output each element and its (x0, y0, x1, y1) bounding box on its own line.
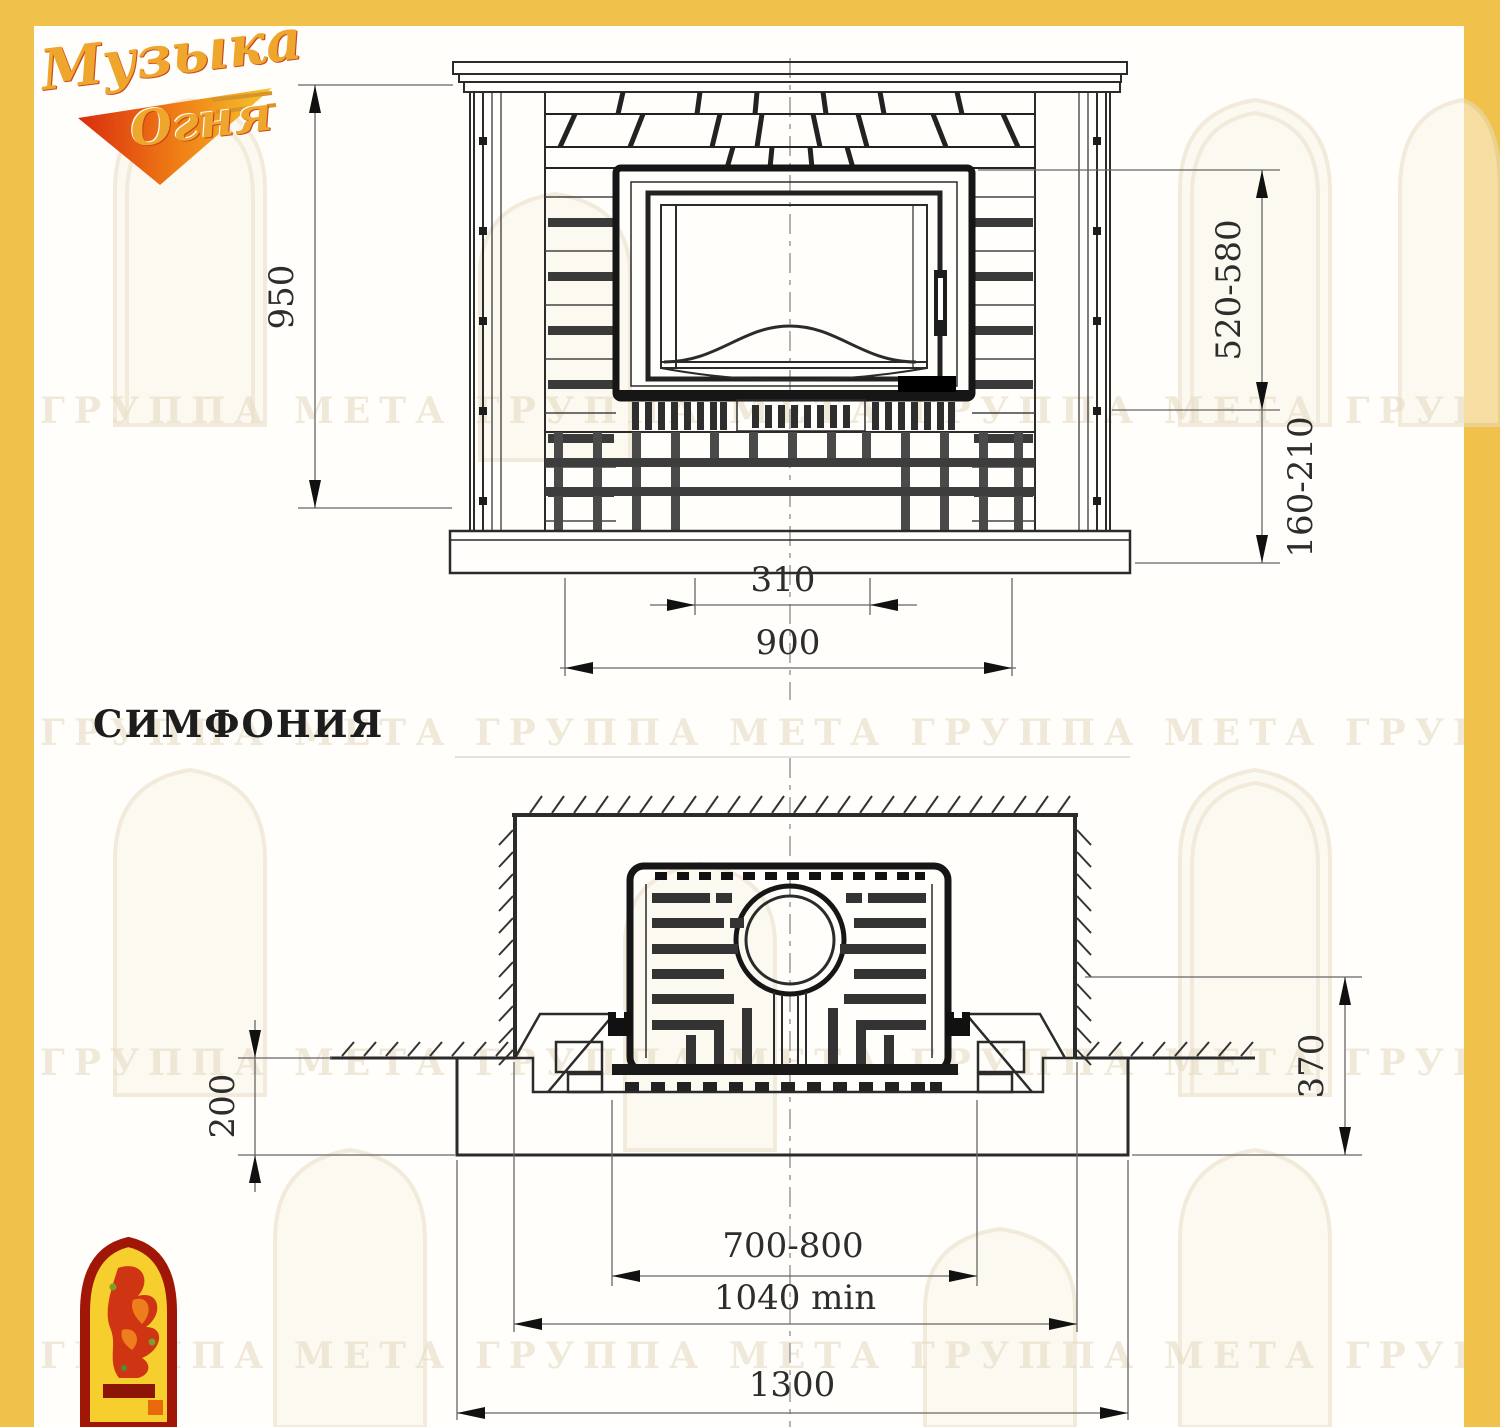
drawing-sheet: ГРУППА МЕТА ГРУППА МЕТА ГРУППА МЕТА ГРУП… (0, 0, 1500, 1427)
dim-overall-height: 950 (262, 265, 302, 330)
plan-view-dimensions (238, 977, 1362, 1420)
dim-hearth-width: 1300 (749, 1365, 836, 1405)
firebox-front (616, 168, 972, 398)
dim-hearth-projection: 200 (203, 1074, 243, 1139)
firebox-plan (608, 866, 970, 1091)
dim-firebox-height-range: 520-580 (1209, 219, 1249, 360)
dim-niche-width: 1040 min (714, 1278, 876, 1318)
dim-front-depth: 370 (1292, 1034, 1332, 1099)
plan-section-drawing (330, 757, 1255, 1427)
niche-walls (499, 796, 1091, 1065)
dim-body-width: 900 (756, 623, 821, 663)
ground-lines (330, 1042, 1255, 1058)
dim-portal-width: 700-800 (722, 1226, 863, 1266)
dim-hearth-height-range: 160-210 (1281, 416, 1321, 557)
dim-center-width: 310 (751, 560, 816, 600)
front-elevation-drawing (450, 58, 1130, 700)
model-name-label: СИМФОНИЯ (93, 702, 384, 746)
meta-arch-logo (85, 1242, 172, 1427)
